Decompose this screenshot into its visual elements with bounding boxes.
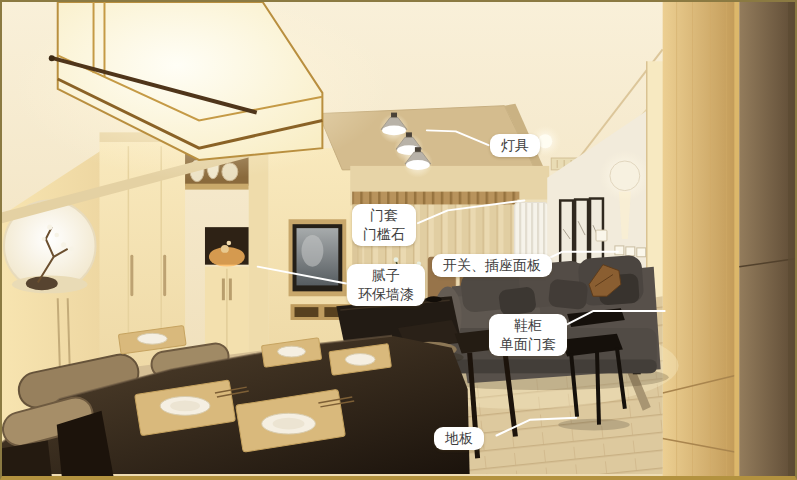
callout-putty-paint-line2: 环保墙漆 <box>358 285 414 304</box>
callout-floor-text: 地板 <box>445 429 473 448</box>
callout-door-casing-line1: 门套 <box>363 206 405 225</box>
callout-shoe-cabinet: 鞋柜 单面门套 <box>489 314 567 356</box>
annotated-room-photo: 灯具 门套 门槛石 开关、插座面板 腻子 环保墙漆 鞋柜 单面门套 地板 <box>0 0 797 480</box>
shoe-cabinet-panel <box>663 2 737 476</box>
callout-putty-paint: 腻子 环保墙漆 <box>347 264 425 306</box>
lit-display-niche <box>205 227 249 267</box>
callout-shoe-cabinet-line2: 单面门套 <box>500 335 556 354</box>
entry-door-panel <box>734 2 795 476</box>
callout-putty-paint-line1: 腻子 <box>358 266 414 285</box>
callout-door-casing-line2: 门槛石 <box>363 225 405 244</box>
callout-switch-socket: 开关、插座面板 <box>432 254 552 277</box>
callout-switch-socket-text: 开关、插座面板 <box>443 256 541 275</box>
tv <box>289 219 347 296</box>
callout-door-casing: 门套 门槛石 <box>352 204 416 246</box>
callout-floor: 地板 <box>434 427 484 450</box>
tv-wall <box>269 148 355 363</box>
callout-lighting: 灯具 <box>490 134 540 157</box>
callout-shoe-cabinet-line1: 鞋柜 <box>500 316 556 335</box>
callout-lighting-text: 灯具 <box>501 136 529 155</box>
